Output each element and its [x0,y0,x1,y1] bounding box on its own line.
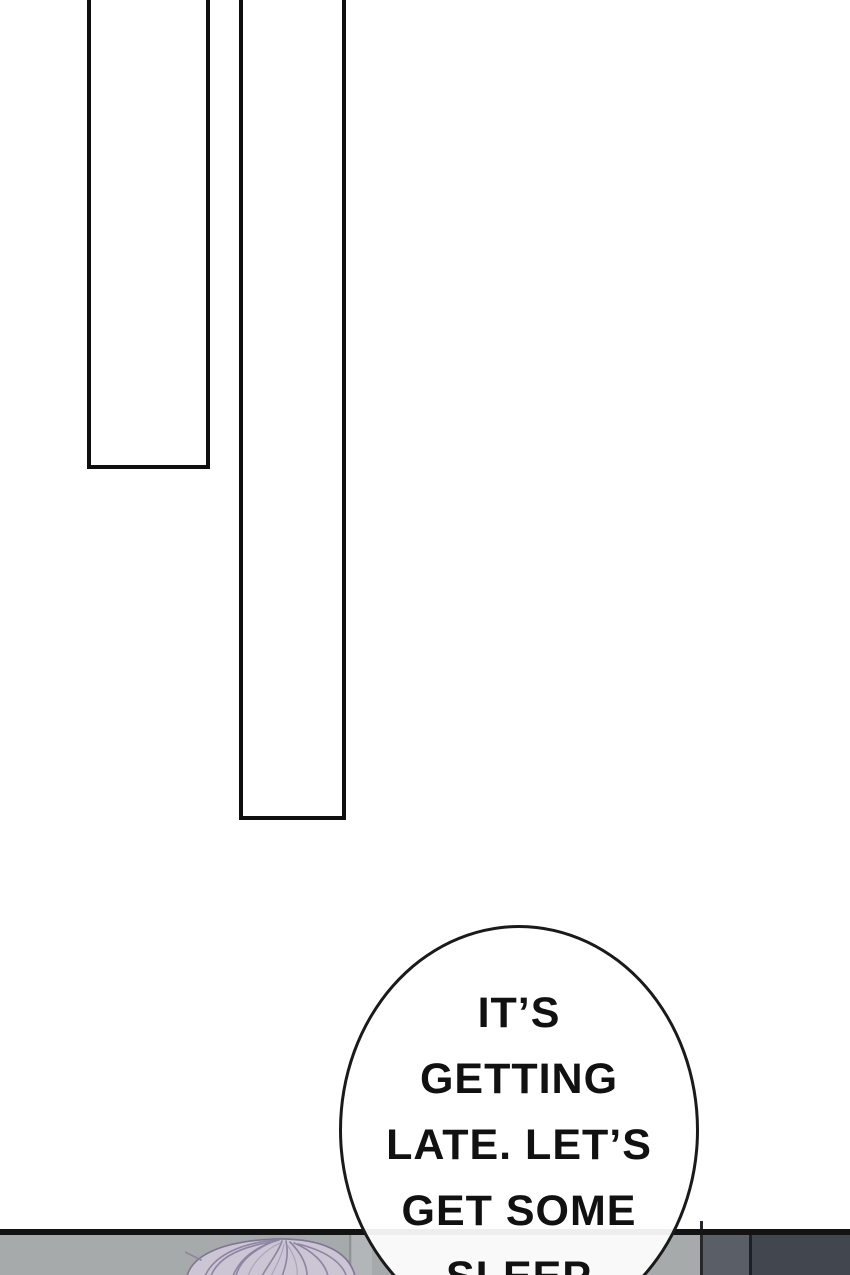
speech-line-1: IT’S [339,980,699,1046]
speech-bubble-text: IT’S GETTING LATE. LET’S GET SOME SLEEP [339,980,699,1275]
panel-rect-2 [239,0,346,820]
wall-section-mid [703,1233,749,1275]
character-head [185,1234,360,1275]
speech-line-5: SLEEP [339,1244,699,1275]
speech-line-3: LATE. LET’S [339,1112,699,1178]
panel-rect-1 [87,0,210,469]
speech-line-2: GETTING [339,1046,699,1112]
speech-line-4: GET SOME [339,1178,699,1244]
wall-section-dark [752,1233,850,1275]
comic-page: IT’S GETTING LATE. LET’S GET SOME SLEEP [0,0,850,1275]
